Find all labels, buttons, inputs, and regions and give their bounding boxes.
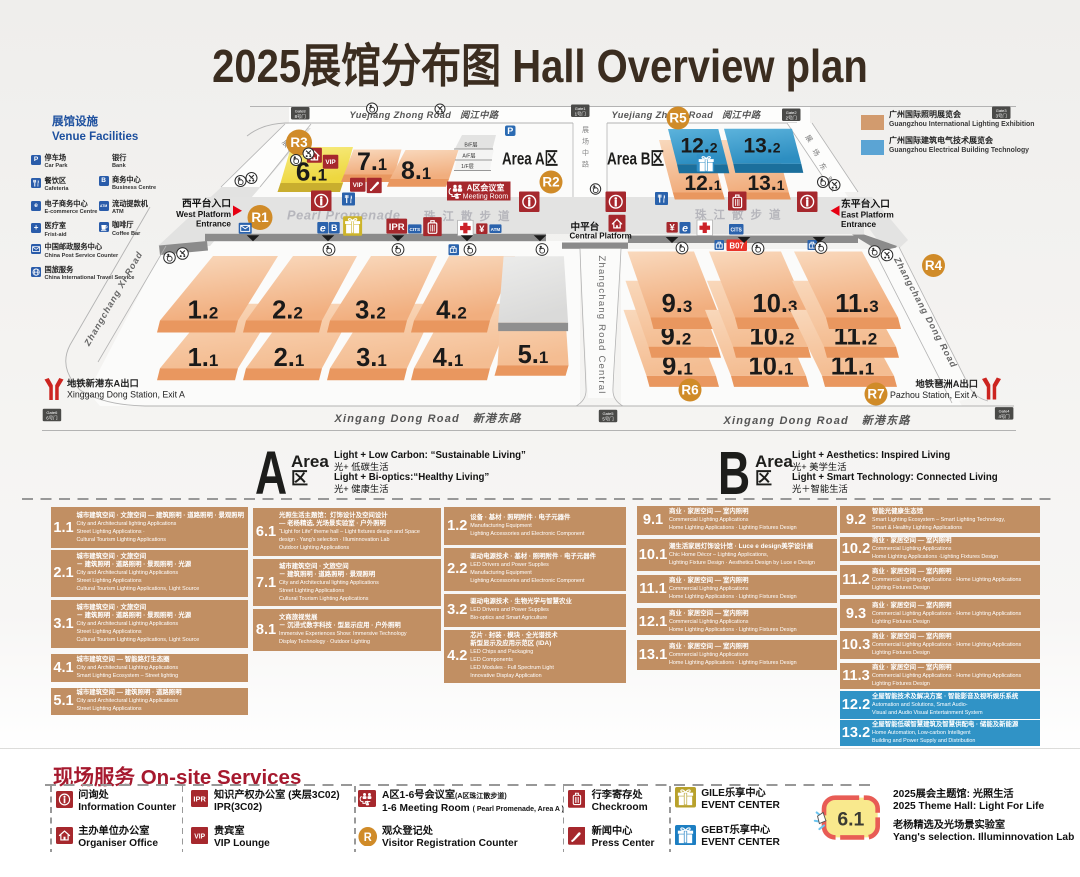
svg-text:Meeting Room: Meeting Room: [463, 194, 509, 201]
svg-text:Gate2: Gate2: [786, 110, 798, 115]
svg-text:B/F层: B/F层: [464, 142, 477, 149]
svg-text:ATM: ATM: [491, 227, 501, 232]
svg-text:B07: B07: [729, 241, 744, 250]
svg-text:R: R: [364, 831, 372, 843]
svg-text:5号门: 5号门: [602, 416, 613, 423]
svg-text:路: 路: [582, 160, 589, 169]
svg-text:R1: R1: [251, 210, 269, 225]
svg-text:Gate5: Gate5: [603, 411, 615, 416]
svg-text:地铁新港东A出口: 地铁新港东A出口: [67, 378, 139, 389]
svg-text:R4: R4: [925, 258, 943, 273]
svg-text:Area A区: Area A区: [502, 149, 558, 169]
svg-text:地铁琶洲A出口: 地铁琶洲A出口: [916, 378, 979, 389]
svg-text:1号门: 1号门: [575, 110, 586, 117]
svg-text:Central Platform: Central Platform: [570, 232, 632, 241]
svg-text:Area B区: Area B区: [607, 149, 664, 169]
svg-text:R7: R7: [867, 387, 884, 402]
svg-text:东平台入口: 东平台入口: [841, 197, 890, 210]
svg-text:Entrance: Entrance: [196, 220, 231, 229]
svg-text:西平台入口: 西平台入口: [182, 197, 231, 210]
svg-text:1/F层: 1/F层: [461, 163, 474, 170]
svg-text:R2: R2: [542, 175, 559, 190]
svg-text:¥: ¥: [669, 223, 675, 234]
svg-text:Gate8: Gate8: [295, 108, 307, 113]
svg-text:¥: ¥: [479, 224, 485, 235]
svg-text:A/F层: A/F层: [462, 153, 475, 160]
svg-text:CITS: CITS: [410, 227, 420, 232]
svg-text:P: P: [507, 126, 513, 136]
svg-text:Gate1: Gate1: [575, 106, 587, 111]
svg-text:Xingang Dong Road 新港东路: Xingang Dong Road 新港东路: [722, 414, 911, 427]
svg-text:Zhangchang Road Central: Zhangchang Road Central: [596, 255, 607, 394]
svg-text:Gate3: Gate3: [996, 108, 1008, 113]
svg-text:3号门: 3号门: [996, 112, 1007, 119]
svg-text:A区会议室: A区会议室: [467, 183, 505, 193]
svg-text:Gate4: Gate4: [999, 409, 1011, 414]
svg-text:R6: R6: [681, 383, 699, 398]
svg-text:East Platform: East Platform: [841, 211, 894, 220]
svg-text:Xinggang Dong Station, Exit A: Xinggang Dong Station, Exit A: [67, 390, 185, 400]
svg-text:8号门: 8号门: [295, 113, 306, 120]
svg-text:e: e: [682, 222, 688, 234]
svg-text:e: e: [320, 222, 326, 234]
svg-text:2号门: 2号门: [786, 114, 797, 121]
svg-text:R5: R5: [669, 111, 687, 126]
svg-text:West Platform: West Platform: [176, 210, 231, 219]
svg-text:Entrance: Entrance: [841, 220, 876, 229]
svg-text:CITS: CITS: [731, 228, 743, 234]
svg-text:R3: R3: [290, 135, 308, 150]
svg-text:VIP: VIP: [194, 834, 205, 841]
svg-text:Xingang Dong Road 新港东路: Xingang Dong Road 新港东路: [333, 412, 522, 425]
svg-text:中: 中: [582, 148, 589, 157]
svg-text:B: B: [331, 223, 338, 233]
svg-text:6.1: 6.1: [837, 808, 864, 830]
svg-text:展: 展: [582, 126, 589, 134]
svg-text:IPR: IPR: [193, 794, 206, 803]
svg-text:Pazhou Station, Exit A: Pazhou Station, Exit A: [890, 390, 977, 400]
svg-text:IPR: IPR: [389, 222, 405, 233]
svg-text:Gate6: Gate6: [46, 410, 58, 415]
svg-text:VIP: VIP: [353, 182, 364, 189]
svg-text:6号门: 6号门: [46, 415, 57, 422]
svg-text:场: 场: [582, 137, 589, 146]
svg-text:VIP: VIP: [325, 159, 336, 166]
svg-text:4号门: 4号门: [998, 413, 1009, 420]
